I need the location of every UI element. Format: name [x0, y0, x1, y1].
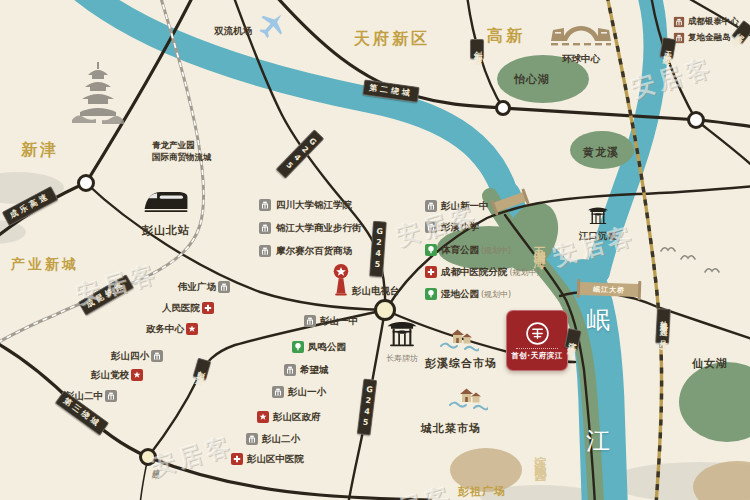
pengshan-new-no1-middle-school-icon [425, 200, 437, 212]
area-label-yixin-lake: 怡心湖 [514, 72, 550, 87]
moersaier-department-store-label: 摩尔赛尔百货商场 [276, 245, 352, 258]
area-label-pengzu-square: 彭祖广场 [458, 484, 506, 499]
project-logo-divider [516, 348, 558, 349]
pengshan-no1-primary-school-label: 彭山一小 [288, 386, 326, 399]
region-label-xinjin: 新津 [21, 140, 59, 161]
shuangliu-airport-icon [255, 8, 289, 42]
changshou-paifang-label: 长寿牌坊 [386, 353, 418, 364]
minjiang-bridge: 岷江大桥 [578, 281, 640, 296]
global-center-icon [549, 14, 613, 48]
road-badge-jiannan-avenue: 剑南大道 [470, 39, 484, 59]
pengshan-district-government-label: 彭山区政府 [273, 411, 321, 424]
location-map: 首创·天府滨江 新津天府新区高新产业新城岷江五湖四海滨江湿地公园怡心湖黄龙溪仙女… [0, 0, 750, 500]
pengshan-north-station-icon [141, 186, 191, 215]
chengdu-yintai-center-icon [674, 17, 685, 28]
fengming-park-icon [292, 341, 304, 353]
shuangliu-airport-label: 双流机场 [214, 25, 252, 38]
pengshan-no1-primary-school-icon [272, 386, 284, 398]
pengxi-comprehensive-market-label: 彭溪综合市场 [425, 356, 497, 371]
jinjiang-college-walking-street-icon [259, 222, 271, 234]
sports-park-icon [425, 244, 437, 256]
green-label-binjiang-wetland-park: 滨江湿地公园 [532, 446, 549, 464]
river-label-jiang-char: 江 [586, 425, 610, 457]
pengshan-no2-primary-school-icon [246, 433, 258, 445]
pengshan-new-no1-middle-school-label: 彭山新一中 [441, 200, 489, 213]
qinglong-industrial-park-label-line2: 国际商贸物流城 [152, 152, 212, 164]
pengshan-tv-station-icon [332, 264, 350, 297]
area-label-xiannv-lake: 仙女湖 [692, 356, 728, 371]
scu-jinjiang-college-label: 四川大学锦江学院 [276, 199, 352, 212]
road-junction [687, 111, 705, 129]
road-junction [77, 174, 95, 192]
project-emblem-icon [525, 321, 550, 346]
project-name: 首创·天府滨江 [511, 351, 562, 361]
fengming-park-label: 凤鸣公园 [308, 341, 346, 354]
pengshan-no4-primary-school-icon [151, 350, 163, 362]
area-label-huanglongxi: 黄龙溪 [583, 145, 619, 160]
sports-park-label: 体育公园(规划中) [441, 244, 511, 257]
pengshan-no2-middle-school-icon [105, 390, 117, 402]
hope-city-label: 希望城 [300, 364, 329, 377]
changshou-paifang-icon [385, 319, 419, 348]
hope-city-icon [284, 364, 296, 376]
pengxi-comprehensive-market-icon [439, 326, 479, 352]
global-center-label: 环球中心 [562, 53, 600, 66]
road-junction [495, 100, 511, 116]
jinjiang-college-walking-street-label: 锦江大学商业步行街 [276, 222, 362, 235]
bird-icon [660, 244, 676, 254]
chengdu-tcm-hospital-branch-label: 成都中医院分院(规划中) [441, 266, 540, 279]
pengxi-primary-school-icon [425, 221, 437, 233]
chengbei-food-market-icon [448, 385, 488, 411]
region-label-tianfu-new-district: 天府新区 [354, 29, 430, 50]
pengshan-no1-middle-school-icon [304, 315, 316, 327]
pengshan-party-school-label: 彭山党校 [91, 369, 129, 382]
pengshan-north-station-label: 彭山北站 [142, 223, 190, 238]
moersaier-department-store-icon [259, 245, 271, 257]
road-junction [374, 299, 396, 321]
government-affairs-center-icon [186, 323, 198, 335]
government-affairs-center-label: 政务中心 [146, 323, 184, 336]
region-label-industry-new-town: 产业新城 [11, 256, 79, 274]
pengshan-tcm-hospital-icon [231, 453, 243, 465]
road-junction [139, 448, 157, 466]
pengshan-tv-station-label: 彭山电视台 [352, 285, 400, 298]
fudi-financial-island-label: 复地金融岛 [688, 32, 731, 44]
scu-jinjiang-college-icon [259, 199, 271, 211]
chengdu-tcm-hospital-branch-plan-note: (规划中) [510, 268, 540, 277]
river-label-min-char: 岷 [586, 304, 610, 336]
pengshan-tcm-hospital-label: 彭山区中医院 [247, 453, 304, 466]
bird-icon [680, 252, 696, 262]
pengshan-no4-primary-school-label: 彭山四小 [111, 350, 149, 363]
pengxi-primary-school-label: 彭溪小学 [441, 221, 479, 234]
chengdu-tcm-hospital-branch-icon [425, 266, 437, 278]
pengshan-no2-primary-school-label: 彭山二小 [262, 433, 300, 446]
bird-icon [704, 265, 720, 275]
peoples-hospital-label: 人民医院 [162, 302, 200, 315]
region-label-gaoxin: 高新 [487, 26, 525, 47]
pengshan-no1-middle-school-label: 彭山一中 [320, 315, 358, 328]
peoples-hospital-icon [202, 302, 214, 314]
wetland-park-label: 湿地公园(规划中) [441, 288, 511, 301]
project-logo: 首创·天府滨江 [506, 310, 568, 371]
road-badge-metro-line5: 轨道交通5号线 [655, 308, 671, 344]
pengshan-district-government-icon [257, 411, 269, 423]
weiye-square-label: 伟业广场 [178, 281, 216, 294]
pagoda-scenery-icon [70, 60, 126, 126]
wetland-park-plan-note: (规划中) [481, 290, 511, 299]
jiangkou-chenyin-icon [586, 205, 610, 225]
sports-park-plan-note: (规划中) [481, 246, 511, 255]
wetland-park-icon [425, 288, 437, 300]
chengbei-food-market-label: 城北菜市场 [421, 421, 481, 436]
chengdu-yintai-center-label: 成都银泰中心 [688, 16, 739, 28]
qinglong-industrial-park-label: 青龙产业园国际商贸物流城 [152, 140, 212, 164]
jiangkou-chenyin-label: 江口沉银 [579, 230, 617, 243]
green-label-wuhu-sihai: 五湖四海 [531, 237, 548, 249]
pengshan-party-school-icon [131, 369, 143, 381]
weiye-square-icon [218, 281, 230, 293]
